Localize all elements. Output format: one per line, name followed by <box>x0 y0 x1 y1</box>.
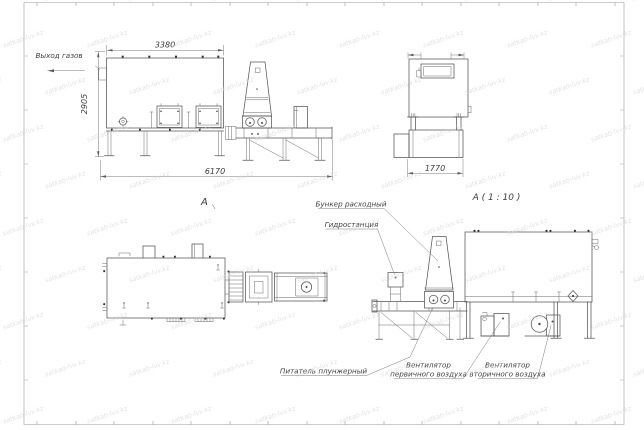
body-legs <box>108 131 222 156</box>
frame-ticks-top <box>37 3 615 7</box>
plan-body <box>107 258 225 318</box>
callout-hopper: Бункер расходный <box>315 200 386 209</box>
front-view: 3380 2905 6170 Выход газов А <box>36 41 333 210</box>
primary-fan-dot <box>502 318 504 320</box>
end-view-label: А ( 1 : 10 ) <box>472 193 521 203</box>
end-dim-lines <box>408 53 465 178</box>
primary-fan-inlet <box>481 316 494 336</box>
side-view: Бункер расходный Гидростанция Питатель п… <box>280 200 599 379</box>
port-ticks <box>118 116 128 126</box>
hatch-2-inner <box>199 104 219 126</box>
callout-feeder: Питатель плунжерный <box>280 367 367 376</box>
callout-fan-secondary-line2: вторичного воздуха <box>469 370 545 379</box>
plan-stud-dots <box>123 264 222 303</box>
end-base <box>409 130 463 158</box>
sheet-frame <box>24 3 624 425</box>
end-legs <box>411 117 461 130</box>
primary-fan-motor <box>483 313 488 317</box>
primary-fan-housing <box>494 314 509 337</box>
plan-bumps <box>143 244 203 258</box>
hatch-1-inner <box>160 104 180 126</box>
secondary-fan-housing <box>547 315 561 336</box>
end-hatch-inner <box>417 67 451 78</box>
plan-bolts <box>103 256 325 320</box>
tower-mark-dot <box>256 88 258 90</box>
plan-bellows-ribs <box>229 276 243 300</box>
port-circle <box>119 118 126 125</box>
plan-hopper-inner <box>250 270 269 305</box>
callout-hydraulic: Гидростанция <box>325 220 379 229</box>
plan-conveyor-inner <box>275 273 328 301</box>
front-dim-arrows <box>48 49 333 178</box>
cad-drawing: 3380 2905 6170 Выход газов А 1770 А ( 1 … <box>0 0 644 430</box>
conveyor-flange-ticks <box>244 128 316 138</box>
screw-conveyor <box>236 127 332 139</box>
hatch-1 <box>157 106 182 128</box>
port-circle-inner <box>122 120 125 123</box>
end-body <box>409 59 468 117</box>
side-floor-studs <box>512 292 561 302</box>
side-top-bolts <box>474 230 590 232</box>
gas-outlet-stub <box>96 66 107 80</box>
tower-fan-dots <box>249 122 263 124</box>
end-right-clip <box>468 107 471 113</box>
callout-fan-secondary-line1: Вентилятор <box>485 361 530 370</box>
drawing-sheet: 3380 2905 6170 Выход газов А 1770 А ( 1 … <box>0 0 644 430</box>
tower-fan-box <box>243 116 272 128</box>
frame-border <box>24 3 624 425</box>
right-block <box>294 107 308 129</box>
end-view: 1770 А ( 1 : 10 ) <box>394 53 520 204</box>
secondary-fan-center <box>538 323 540 325</box>
tower-flange <box>245 98 271 113</box>
plan-stud-symbols <box>120 265 224 325</box>
hatch-2 <box>196 106 221 128</box>
dim-height: 2905 <box>80 94 89 114</box>
wall-top-bolts <box>122 56 220 58</box>
deck-bolts <box>111 129 201 131</box>
side-tower-dot <box>438 266 440 268</box>
conveyor-bolt-dots <box>251 133 259 135</box>
plan-conveyor <box>275 273 328 301</box>
plan-vent <box>119 253 130 256</box>
front-view-label: А <box>200 197 208 208</box>
end-leg-bolts <box>412 114 461 118</box>
furnace-body <box>107 58 224 131</box>
plan-view <box>103 244 328 325</box>
frame-ticks-bottom <box>37 421 615 425</box>
body-conveyor-connector <box>226 127 237 140</box>
end-base-inner <box>413 130 459 158</box>
frame-ticks-left <box>25 56 29 380</box>
dim-width-top: 3380 <box>155 41 175 50</box>
side-hopper-tower <box>426 237 454 291</box>
tower-window <box>256 68 261 73</box>
front-view-label-tick <box>213 205 216 210</box>
hatch-bolt-dots <box>160 111 218 125</box>
hydraulic-dot <box>395 277 397 279</box>
callout-fan-primary-line2: первичного воздуха <box>390 370 467 379</box>
side-bracket-circle <box>594 245 598 249</box>
side-diamond-dot <box>572 295 574 297</box>
dim-width-total: 6170 <box>205 167 225 176</box>
hydraulic-stand <box>391 287 401 302</box>
end-dim-arrows <box>408 54 465 175</box>
primary-fan-circle <box>483 317 487 321</box>
hydraulic-station <box>388 273 403 288</box>
secondary-fan-dot <box>552 321 554 323</box>
dim-end-width: 1770 <box>425 164 445 173</box>
feeder-frame <box>379 308 460 339</box>
callout-gas-outlet: Выход газов <box>36 51 83 60</box>
side-body-legs <box>467 302 592 338</box>
plan-connector-lines <box>225 280 229 294</box>
feeder-cylinder <box>373 304 376 307</box>
callout-fan-primary-line1: Вентилятор <box>406 361 451 370</box>
side-furnace-body <box>465 232 592 302</box>
plan-fan-dot <box>306 286 308 288</box>
end-side-box <box>394 134 409 158</box>
frame-ticks-right <box>620 56 624 380</box>
deck-posts <box>150 112 190 128</box>
conveyor-frame <box>247 138 322 160</box>
plan-bellows <box>229 272 243 302</box>
right-block-inner <box>294 107 298 129</box>
callout-leaders <box>281 209 551 379</box>
